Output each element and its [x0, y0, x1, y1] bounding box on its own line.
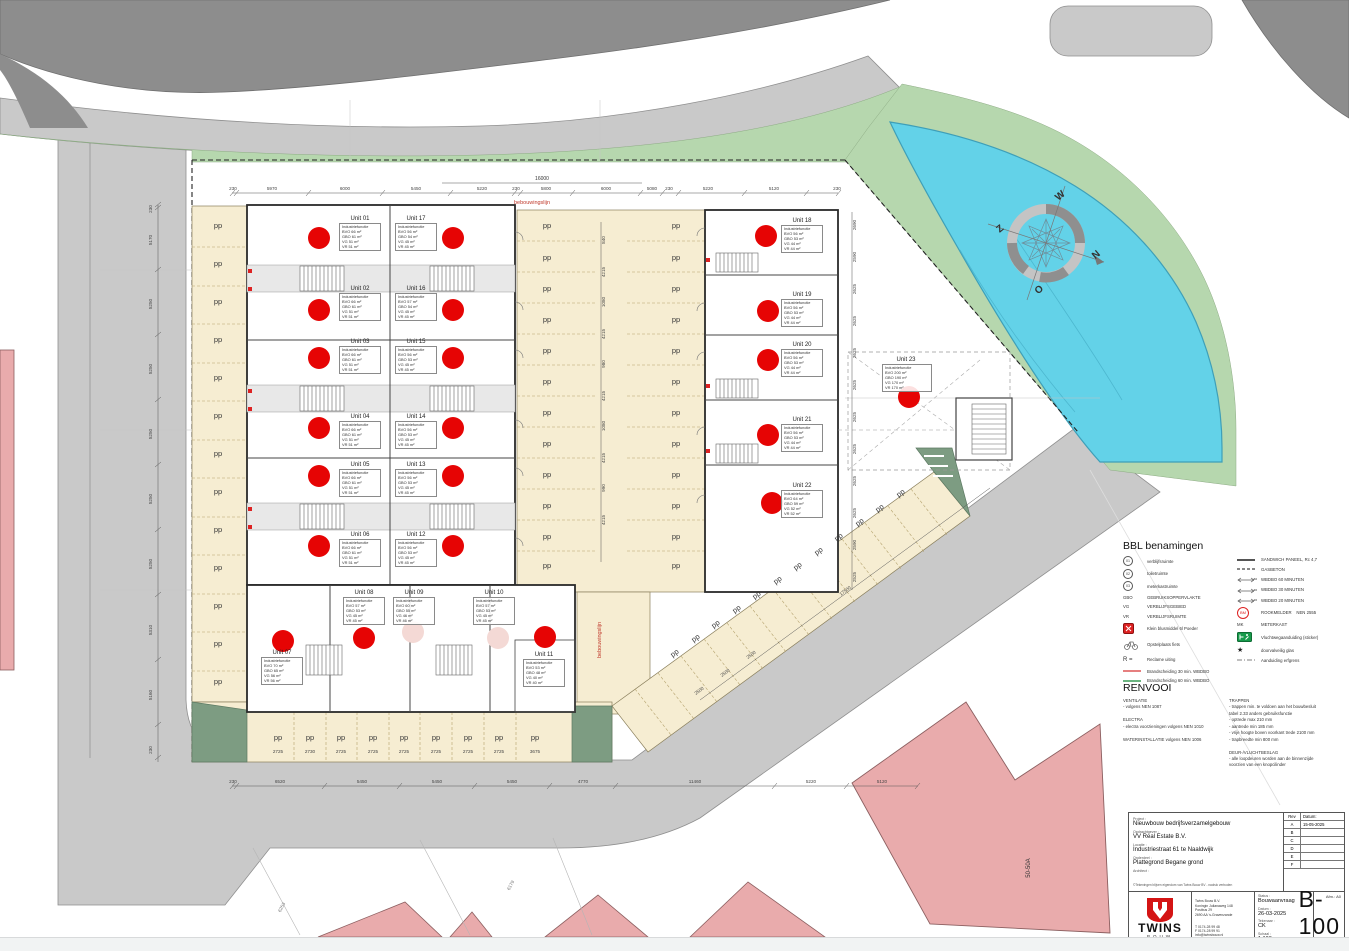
unit-marker: [757, 349, 779, 371]
unit-marker: [308, 417, 330, 439]
core-band: [247, 503, 515, 530]
parking-space-label: pp: [306, 733, 314, 742]
dim-text: 2625: [852, 507, 857, 518]
wbdbo-minutes: 30: [1254, 588, 1257, 592]
parking-space-label: pp: [543, 501, 551, 510]
dim-text: 4215: [601, 390, 606, 401]
unit-marker: [755, 225, 777, 247]
legend-label: Reclame uiting: [1147, 657, 1175, 662]
dim-text: 3675: [530, 749, 541, 754]
unit-marker: [308, 535, 330, 557]
legend-item: 20WBDBO 20 MINUTEN: [1237, 596, 1349, 604]
dim-text: 2625: [852, 443, 857, 454]
wbdbo-minutes: 20: [1254, 598, 1257, 602]
dim-text: 5220: [806, 779, 817, 784]
dim-text: 980: [601, 360, 606, 368]
parking-space-label: pp: [214, 525, 222, 534]
dim-text: 5220: [477, 186, 488, 191]
dim-text: 4215: [601, 452, 606, 463]
dim-text: 5450: [357, 779, 368, 784]
parking-space-label: pp: [274, 733, 282, 742]
legend-item: MKMETERKAST: [1237, 621, 1349, 628]
legend-label: WBDBO 60 MINUTEN: [1261, 577, 1304, 582]
title-block: Project :Nieuwbouw bedrijfsverzamelgebou…: [1128, 812, 1345, 945]
parking-space-label: pp: [543, 253, 551, 262]
dim-text: 5450: [411, 186, 422, 191]
legend-title: BBL benamingen: [1123, 540, 1349, 552]
rev-date-header: Datum:: [1301, 813, 1344, 820]
dim-text: 2625: [852, 379, 857, 390]
gasbeton-icon: [1237, 567, 1255, 571]
dim-text: 2725: [399, 749, 410, 754]
neighbor-building: [450, 912, 492, 937]
parking-space-label: pp: [672, 561, 680, 570]
legend-item: GBOGEBRUIKSOPPERVLAKTE: [1123, 594, 1223, 601]
legend-right-column: SANDWICH PANEEL, Rc 4,7 GASBETON 60WBDBO…: [1237, 556, 1349, 684]
unit-marker: [757, 424, 779, 446]
parking-space-label: pp: [214, 373, 222, 382]
parking-space-label: pp: [337, 733, 345, 742]
dim-text: 2725: [431, 749, 442, 754]
field-label: Architect :: [1133, 869, 1283, 873]
field-value: VV Real Estate B.V.: [1133, 834, 1283, 840]
parking-space-label: pp: [531, 733, 539, 742]
dim-text: 2725: [494, 749, 505, 754]
dim-text: 5450: [432, 779, 443, 784]
legend-label: meterkastruimte: [1147, 584, 1178, 589]
abbr-icon: VG: [1123, 604, 1129, 609]
dim-text: 230: [665, 186, 673, 191]
legend-item: GASBETON: [1237, 566, 1349, 573]
unit-marker: [757, 300, 779, 322]
legend-label: Brandscheiding 30 min. WBDBO: [1147, 669, 1209, 674]
parking-space-label: pp: [214, 221, 222, 230]
parking-space-label: pp: [214, 411, 222, 420]
unit-marker: [442, 347, 464, 369]
rev-date: [1301, 837, 1344, 844]
unit-marker: [308, 299, 330, 321]
parking-space-label: pp: [214, 639, 222, 648]
field-value: Nieuwbouw bedrijfsverzamelgebouw: [1133, 821, 1283, 827]
parking-space-label: pp: [672, 408, 680, 417]
parking-space-label: pp: [543, 561, 551, 570]
unit-marker: [442, 417, 464, 439]
legend-item: 60WBDBO 60 MINUTEN: [1237, 575, 1349, 583]
unit-marker: [442, 535, 464, 557]
parcel-number: 6179: [506, 879, 515, 891]
parking-space-label: pp: [543, 532, 551, 541]
copyright-note: ©Tekeningen blijven eigendom van Twins B…: [1133, 883, 1232, 887]
parking-space-label: pp: [543, 439, 551, 448]
dim-text: 11460: [689, 779, 702, 784]
parcel-line: [253, 848, 300, 935]
parking-space-label: pp: [543, 470, 551, 479]
dim-text: 2590: [852, 251, 857, 262]
dim-text: 5160: [148, 689, 153, 700]
green-wedge-sw: [192, 702, 247, 762]
parking-space-label: pp: [214, 259, 222, 268]
dim-text: 6520: [275, 779, 286, 784]
legend-label: Klein blusmiddel 6l Poeder: [1147, 626, 1198, 631]
parking-space-label: pp: [672, 470, 680, 479]
reclame-icon: R =: [1123, 657, 1133, 663]
unit-marker: [761, 492, 783, 514]
parking-space-label: pp: [543, 284, 551, 293]
rev-date: 15-05-2025: [1301, 821, 1344, 828]
company-name: TWINS: [1138, 922, 1182, 934]
renvooi-col2: TRAPPEN - trappen min. te voldoen aan he…: [1229, 698, 1349, 769]
unit-marker: [272, 630, 294, 652]
room-number-icon: 02: [1123, 569, 1133, 579]
legend-label: verblijfsruimte: [1147, 559, 1174, 564]
dim-text: 2625: [852, 283, 857, 294]
rev-letter: E: [1284, 853, 1301, 860]
parking-space-label: pp: [672, 532, 680, 541]
legend-label: SANDWICH PANEEL, Rc 4,7: [1261, 557, 1317, 562]
legend-item: VRVERBLIJFSRUIMTE: [1123, 613, 1223, 620]
parking-space-label: pp: [214, 677, 222, 686]
company-address: Twins Bouw B.V. Koningin Julianaweg 148 …: [1195, 899, 1251, 917]
dim-text: 840: [601, 236, 606, 244]
legend-item: Vluchtwegaanduiding (sticker): [1237, 631, 1349, 644]
dim-text: 5250: [148, 428, 153, 439]
legend-label: Vluchtwegaanduiding (sticker): [1261, 635, 1318, 640]
dim-text: 5250: [148, 558, 153, 569]
wbdbo-30-icon: [1237, 586, 1254, 594]
abbr-icon: VR: [1123, 614, 1129, 619]
parking-space-label: pp: [432, 733, 440, 742]
dim-text: 5120: [769, 186, 780, 191]
field-value: Industriestraat 61 te Naaldwijk: [1133, 847, 1283, 853]
parking-space-label: pp: [214, 449, 222, 458]
dim-text: 1080: [601, 420, 606, 431]
parking-space-label: pp: [672, 346, 680, 355]
unit-marker: [308, 347, 330, 369]
parking-space-label: pp: [400, 733, 408, 742]
parking-space-label: pp: [672, 284, 680, 293]
sandwich-panel-icon: [1237, 558, 1255, 562]
parking-space-label: pp: [214, 297, 222, 306]
rev-date: [1301, 845, 1344, 852]
dim-text: 4215: [601, 514, 606, 525]
parking-space-label: pp: [543, 315, 551, 324]
drawing-sheet: pp pp pp pp pp pp pp pp pp pp pp pp pp p…: [0, 0, 1349, 951]
legend-item: 01verblijfsruimte: [1123, 556, 1223, 566]
unit-marker-ghost: [402, 621, 424, 643]
legend-item: BMROOKMELDER NEN 2555: [1237, 607, 1349, 619]
dim-text: 6000: [340, 186, 351, 191]
parking-space-label: pp: [214, 335, 222, 344]
dim-text: 230: [229, 186, 237, 191]
renvooi-panel: RENVOOI VENTILATIE - volgens NEN 1087 EL…: [1123, 682, 1349, 769]
renvooi-title: RENVOOI: [1123, 682, 1349, 694]
unit-marker: [442, 227, 464, 249]
meterkast-icon: MK: [1237, 622, 1243, 627]
room-number-icon: 03: [1123, 581, 1133, 591]
dim-text: 5170: [148, 234, 153, 245]
building-line-label: bebouwingslijn: [514, 200, 550, 206]
dim-text: 1080: [601, 296, 606, 307]
neighbor-building: [0, 350, 14, 670]
dim-text: 5250: [148, 493, 153, 504]
legend-left-column: 01verblijfsruimte 02toiletruimte 03meter…: [1123, 556, 1223, 684]
dim-text: 2625: [852, 411, 857, 422]
dim-text: 5120: [877, 779, 888, 784]
parking-space-label: pp: [672, 315, 680, 324]
fire-separation-30-icon: [1123, 669, 1141, 673]
dim-text: 2625: [852, 315, 857, 326]
road-dark-top: [0, 0, 890, 93]
site-plan-svg: pp pp pp pp pp pp pp pp pp pp pp pp pp p…: [0, 0, 1349, 937]
legend-item: Klein blusmiddel 6l Poeder: [1123, 622, 1223, 635]
parking-space-label: pp: [464, 733, 472, 742]
legend-item: Brandscheiding 30 min. WBDBO: [1123, 668, 1223, 675]
rev-header: Rev: [1284, 813, 1301, 820]
legend-label: toiletruimte: [1147, 571, 1168, 576]
legend-label: VERBLIJFSRUIMTE: [1147, 614, 1186, 619]
dim-text: 990: [601, 484, 606, 492]
unit-marker: [534, 626, 556, 648]
dim-text: 4215: [601, 328, 606, 339]
rev-letter: F: [1284, 861, 1301, 868]
dim-text: 5970: [267, 186, 278, 191]
wbdbo-60-icon: [1237, 575, 1254, 583]
parking-space-label: pp: [543, 408, 551, 417]
neighbor-building: [318, 902, 442, 937]
property-boundary-icon: [1237, 658, 1255, 662]
parking-space-label: pp: [672, 377, 680, 386]
rev-letter: D: [1284, 845, 1301, 852]
neighbor-building-label: 50-50A: [1026, 858, 1032, 877]
core-band: [247, 385, 515, 412]
dim-text: 230: [148, 205, 153, 213]
dim-text: 5220: [703, 186, 714, 191]
wbdbo-minutes: 60: [1254, 577, 1257, 581]
neighbor-building: [545, 895, 648, 937]
parking-space-label: pp: [369, 733, 377, 742]
legend-label: WBDBO 30 MINUTEN: [1261, 587, 1304, 592]
parking-space-label: pp: [214, 487, 222, 496]
legend-item: Aanduiding erfgrens: [1237, 657, 1349, 664]
parking-space-label: pp: [214, 563, 222, 572]
unit-marker: [308, 465, 330, 487]
dim-text: 2590: [852, 539, 857, 550]
dim-text: 5080: [647, 186, 658, 191]
core-band: [247, 265, 515, 292]
dim-text: 230: [148, 746, 153, 754]
legend-item: ★doorvalveilig glas: [1237, 646, 1349, 654]
building-south-block: [247, 585, 575, 712]
parking-space-label: pp: [543, 346, 551, 355]
legend-item: SANDWICH PANEEL, Rc 4,7: [1237, 556, 1349, 563]
room-number-icon: 01: [1123, 556, 1133, 566]
legend-label: WBDBO 20 MINUTEN: [1261, 598, 1304, 603]
legend-panel: BBL benamingen 01verblijfsruimte 02toile…: [1123, 540, 1349, 684]
rev-date: [1301, 853, 1344, 860]
parking-space-label: pp: [495, 733, 503, 742]
dim-text: 2525: [852, 571, 857, 582]
legend-label: GEBRUIKSOPPERVLAKTE: [1147, 595, 1201, 600]
dim-text: 230: [229, 779, 237, 784]
dim-text: 5800: [541, 186, 552, 191]
dim-text: 2725: [368, 749, 379, 754]
legend-label: VERBLIJFSGEBIED: [1147, 604, 1186, 609]
unit-marker: [898, 386, 920, 408]
parcel-line: [420, 840, 470, 935]
rev-date: [1301, 829, 1344, 836]
legend-item: Opstelplaats fiets: [1123, 638, 1223, 652]
smoke-detector-icon: BM: [1237, 607, 1249, 619]
unit-marker: [308, 227, 330, 249]
dim-text: 2625: [852, 347, 857, 358]
parking-space-label: pp: [672, 439, 680, 448]
twins-bouw-logo-icon: [1145, 898, 1175, 922]
rev-letter: C: [1284, 837, 1301, 844]
dim-text: 5250: [148, 363, 153, 374]
dim-text-overall: 16000: [535, 176, 549, 182]
rev-date: [1301, 861, 1344, 868]
parking-space-label: pp: [543, 377, 551, 386]
unit-marker: [442, 465, 464, 487]
green-wedge-south: [572, 706, 612, 762]
legend-label: METERKAST: [1261, 622, 1287, 627]
dim-text: 230: [833, 186, 841, 191]
parking-space-label: pp: [543, 221, 551, 230]
unit23-stairs: [972, 404, 1006, 454]
field-value: Plattegrond Begane grond: [1133, 860, 1283, 866]
drawing-number: B-100: [1299, 886, 1340, 940]
dim-text: 2730: [305, 749, 316, 754]
rev-letter: B: [1284, 829, 1301, 836]
unit-marker: [353, 627, 375, 649]
abbr-icon: GBO: [1123, 595, 1133, 600]
viewer-bottom-bar: [0, 937, 1349, 951]
bicycle-icon: [1123, 639, 1139, 650]
legend-label: GASBETON: [1261, 567, 1285, 572]
dim-text: 2725: [463, 749, 474, 754]
rev-letter: A: [1284, 821, 1301, 828]
dim-text: 5250: [148, 298, 153, 309]
dim-text: 5450: [507, 779, 518, 784]
exit-sign-icon: [1237, 632, 1252, 642]
dim-text: 2725: [273, 749, 284, 754]
dim-text: 5310: [148, 624, 153, 635]
legend-item: 02toiletruimte: [1123, 569, 1223, 579]
wbdbo-20-icon: [1237, 596, 1254, 604]
neighbor-building-5050a: [852, 702, 1110, 933]
unit-marker: [442, 299, 464, 321]
parking-space-label: pp: [672, 501, 680, 510]
parcel-gray-topright: [1050, 6, 1212, 56]
fire-extinguisher-icon: [1123, 623, 1134, 634]
legend-item: R =Reclame uiting: [1123, 654, 1223, 665]
dim-text: 2690: [852, 219, 857, 230]
building-line-label: bebouwingslijn: [597, 622, 603, 658]
legend-label: ROOKMELDER NEN 2555: [1261, 610, 1316, 615]
legend-label: Aanduiding erfgrens: [1261, 658, 1299, 663]
renvooi-col1: VENTILATIE - volgens NEN 1087 ELECTRA - …: [1123, 698, 1211, 769]
road-dark-topright: [1242, 0, 1349, 118]
neighbor-building: [690, 882, 825, 937]
parking-space-label: pp: [672, 253, 680, 262]
unit-marker-ghost: [487, 627, 509, 649]
legend-label: Opstelplaats fiets: [1147, 642, 1180, 647]
legend-item: 30WBDBO 30 MINUTEN: [1237, 586, 1349, 594]
revision-table: RevDatum: A15-05-2025 B C D E F: [1284, 813, 1344, 891]
dim-text: 2625: [852, 475, 857, 486]
star-icon: ★: [1237, 646, 1243, 654]
parking-space-label: pp: [214, 601, 222, 610]
legend-item: VGVERBLIJFSGEBIED: [1123, 603, 1223, 610]
dim-text: 4770: [578, 779, 589, 784]
dim-text: 6000: [601, 186, 612, 191]
legend-label: doorvalveilig glas: [1261, 648, 1294, 653]
dim-text: 4215: [601, 266, 606, 277]
dim-text: 2725: [336, 749, 347, 754]
title-block-fields: Project :Nieuwbouw bedrijfsverzamelgebou…: [1129, 813, 1284, 891]
parking-space-label: pp: [672, 221, 680, 230]
legend-item: 03meterkastruimte: [1123, 581, 1223, 591]
dim-text: 230: [512, 186, 520, 191]
